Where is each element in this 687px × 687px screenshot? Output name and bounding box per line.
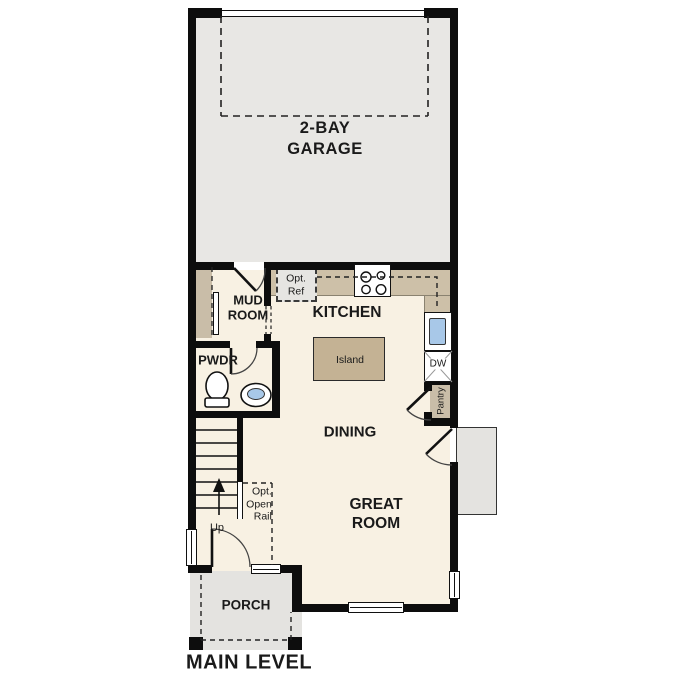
open-rail-label-line3: Rail [246, 510, 272, 523]
wall-pwdr-top-right [256, 341, 280, 348]
dw-label: DW [429, 359, 448, 370]
wall-pwdr-right [272, 348, 280, 418]
garage-door [222, 10, 424, 17]
dining-label: DINING [324, 424, 377, 441]
wall-left-exterior [188, 8, 196, 573]
wall-pwdr-bottom [188, 411, 280, 418]
pantry-label: Pantry [436, 387, 447, 414]
dw-label-text: DW [429, 359, 448, 370]
garage-label-line1: 2-BAY [287, 118, 362, 139]
window-mullion [350, 607, 402, 608]
porch-post-left [189, 637, 203, 650]
mudroom-bench [196, 266, 212, 338]
plan-title: MAIN LEVEL [186, 652, 312, 675]
garage-label-line2: GARAGE [287, 139, 362, 160]
entry-left-window [186, 529, 197, 566]
open-rail-label: Opt. Open Rail [246, 485, 272, 523]
mudroom-label-line2: ROOM [228, 308, 268, 323]
great-room-floor [292, 565, 450, 604]
window-mullion [253, 569, 279, 570]
stove-icon [354, 264, 391, 297]
wall-right-mid [450, 462, 458, 572]
island-label: Island [336, 354, 364, 366]
window-mullion [191, 531, 192, 564]
window-mullion [454, 573, 455, 597]
great-room-label-line2: ROOM [349, 514, 402, 533]
entry-sidelite-window [251, 564, 281, 574]
opt-ref-label: Opt. Ref [286, 273, 306, 298]
wall-garage-bottom-left [188, 262, 234, 270]
up-label: Up [210, 522, 224, 534]
opt-ref-label-line2: Ref [286, 285, 306, 298]
kitchen-sink-basin [429, 318, 446, 345]
great-room-label: GREAT ROOM [349, 495, 402, 533]
side-stoop [456, 427, 497, 515]
porch-post-right [288, 637, 302, 650]
mudroom-label: MUD ROOM [228, 294, 268, 323]
garage-label: 2-BAY GARAGE [287, 118, 362, 160]
wall-pantry-left-bottom [424, 412, 432, 426]
pwdr-label: PWDR [198, 353, 238, 368]
greatroom-right-window [449, 571, 460, 599]
wall-garage-right [450, 8, 458, 270]
open-rail-label-line2: Open [246, 498, 272, 511]
floor-plan: 2-BAY GARAGE MUD ROOM KITCHEN Island Opt… [0, 0, 687, 687]
wall-garage-top-left-post [188, 8, 222, 18]
wall-stairs-right [237, 418, 243, 482]
kitchen-label: KITCHEN [313, 304, 382, 322]
wall-pwdr-top-left [196, 341, 230, 348]
wall-entry-bottom-left [188, 565, 212, 573]
stair-rail [237, 482, 243, 519]
mudroom-label-line1: MUD [228, 294, 268, 309]
porch-label: PORCH [222, 598, 271, 613]
open-rail-label-line1: Opt. [246, 485, 272, 498]
greatroom-bottom-window [348, 602, 404, 613]
opt-ref-label-line1: Opt. [286, 273, 306, 286]
mudroom-closet-door [213, 292, 219, 335]
great-room-label-line1: GREAT [349, 495, 402, 514]
